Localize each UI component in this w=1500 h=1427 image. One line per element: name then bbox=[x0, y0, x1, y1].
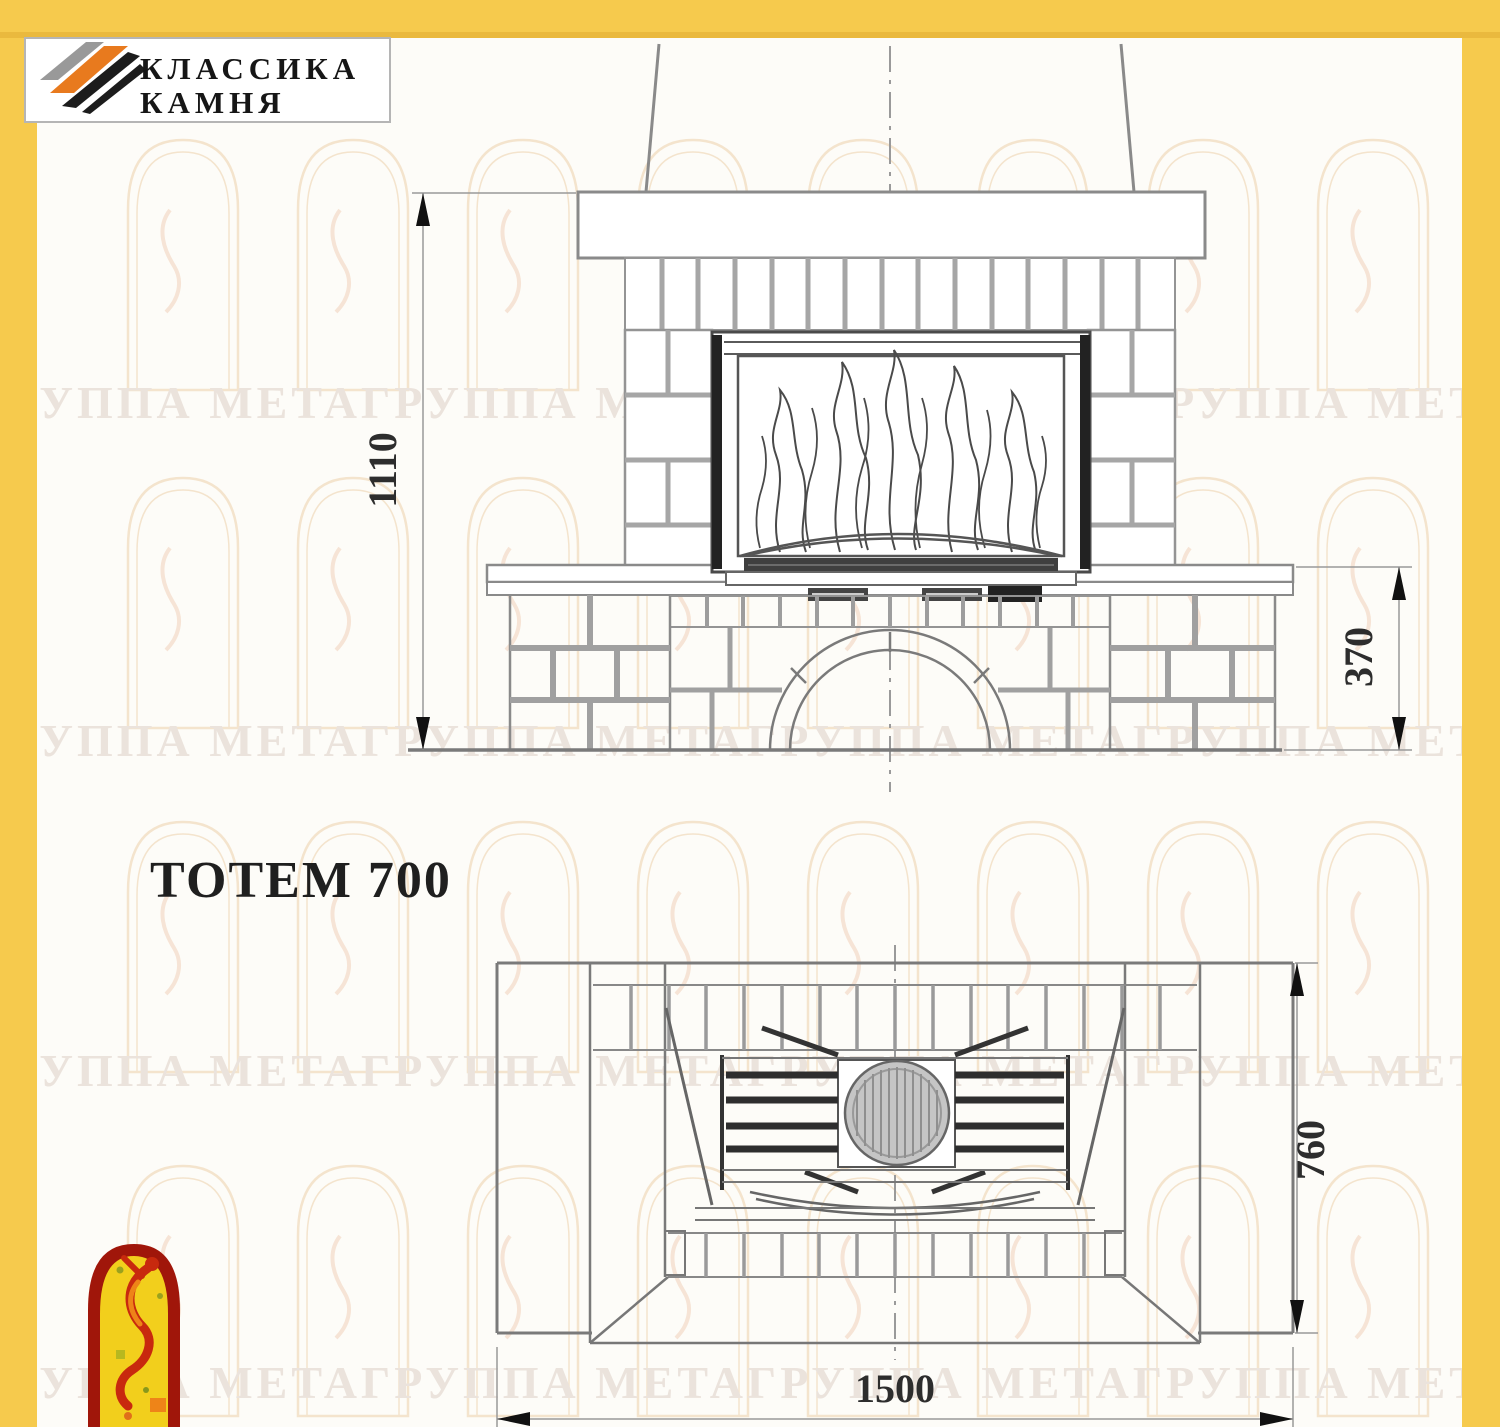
watermark-text: ГРУППА МЕТАГРУППА МЕТАГРУППА МЕТАГРУППА … bbox=[0, 1045, 1500, 1096]
brand-logo: КЛАССИКА КАМНЯ bbox=[25, 38, 390, 122]
insert-sill bbox=[726, 572, 1076, 585]
dimension-label-height: 1110 bbox=[360, 432, 405, 508]
left-brick-pillar bbox=[625, 330, 712, 593]
drawing-sheet: ГРУППА МЕТАГРУППА МЕТАГРУППА МЕТАГРУППА … bbox=[0, 0, 1500, 1427]
flue-opening bbox=[845, 1061, 949, 1165]
right-brick-pillar bbox=[1088, 330, 1175, 593]
watermark-text: ГРУППА МЕТАГРУППА МЕТАГРУППА МЕТАГРУППА … bbox=[0, 1357, 1500, 1408]
page-border-left bbox=[0, 38, 37, 1427]
mascot-emblem bbox=[88, 1244, 180, 1427]
logo-text-line2: КАМНЯ bbox=[140, 85, 286, 120]
dimension-label-plinth: 370 bbox=[1336, 627, 1381, 687]
model-title: ТОТЕМ 700 bbox=[150, 852, 452, 909]
upper-brick-course bbox=[625, 258, 1175, 330]
fireplace-technical-drawing: ГРУППА МЕТАГРУППА МЕТАГРУППА МЕТАГРУППА … bbox=[0, 0, 1500, 1427]
logo-text-line1: КЛАССИКА bbox=[140, 51, 360, 86]
dimension-label-width: 1500 bbox=[855, 1366, 935, 1411]
mantel-shelf bbox=[578, 192, 1205, 258]
firebox-glass bbox=[738, 356, 1064, 556]
dimension-label-depth: 760 bbox=[1288, 1120, 1333, 1180]
page-border-right bbox=[1462, 38, 1500, 1427]
firebox-insert bbox=[712, 332, 1090, 602]
brand-badge bbox=[988, 586, 1042, 602]
